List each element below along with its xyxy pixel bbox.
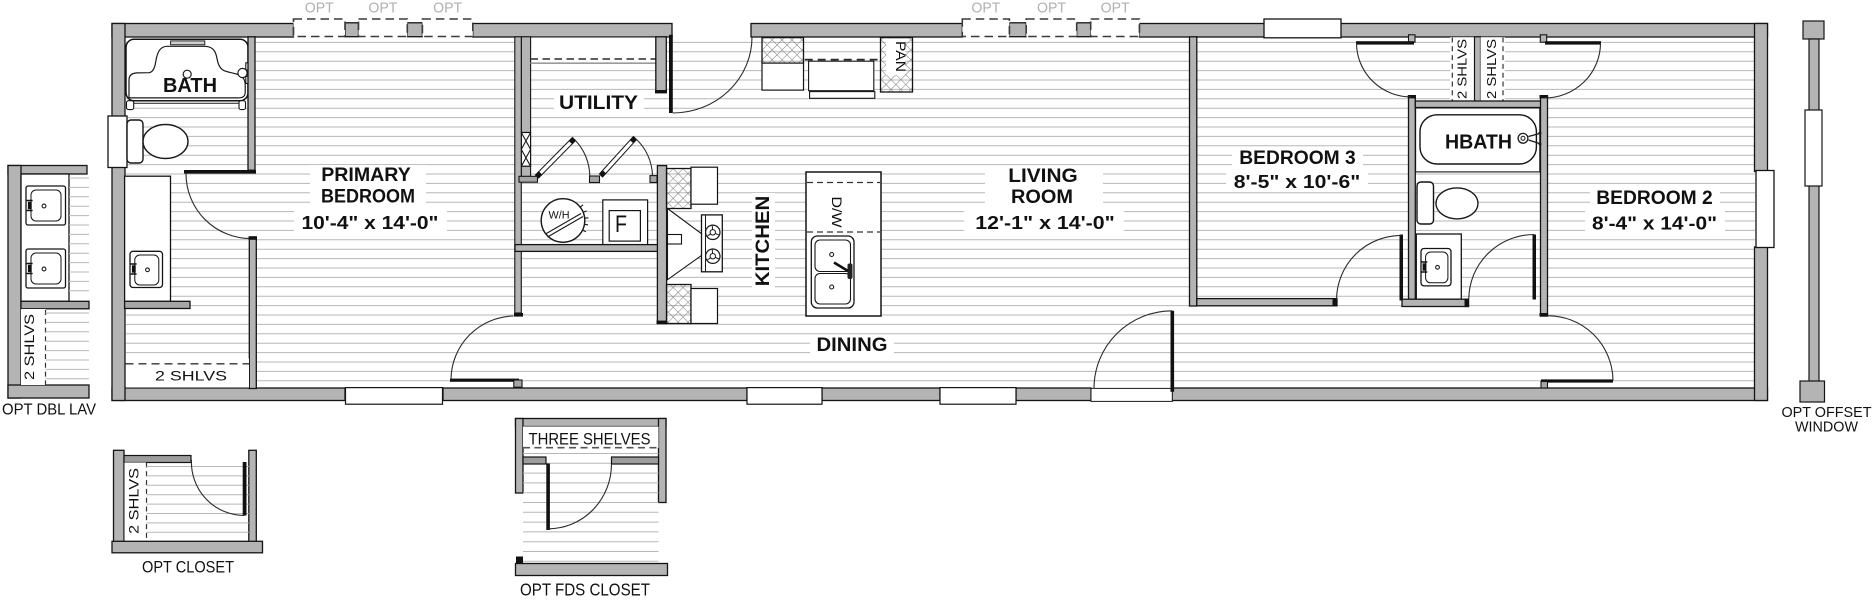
svg-text:ROOM: ROOM [1011, 187, 1073, 208]
svg-text:W/H: W/H [549, 210, 570, 222]
svg-text:2 SHLVS: 2 SHLVS [1455, 39, 1470, 99]
svg-text:OPT: OPT [305, 0, 334, 17]
svg-text:BEDROOM: BEDROOM [321, 187, 415, 208]
svg-text:PRIMARY: PRIMARY [321, 165, 411, 186]
svg-text:D/W: D/W [829, 197, 845, 229]
svg-text:UTILITY: UTILITY [559, 92, 638, 114]
svg-text:WINDOW: WINDOW [1795, 419, 1859, 436]
svg-text:BATH: BATH [163, 75, 217, 97]
svg-text:OPT: OPT [1101, 0, 1130, 17]
svg-text:10'-4" x 14'-0": 10'-4" x 14'-0" [302, 213, 439, 233]
svg-text:8'-4" x 14'-0": 8'-4" x 14'-0" [1592, 214, 1717, 234]
svg-text:F: F [615, 211, 627, 238]
svg-text:2 SHLVS: 2 SHLVS [1484, 39, 1499, 99]
svg-text:OPT: OPT [1037, 0, 1066, 17]
svg-text:12'-1" x 14'-0": 12'-1" x 14'-0" [975, 213, 1115, 233]
svg-text:THREE SHELVES: THREE SHELVES [529, 430, 651, 449]
svg-text:BEDROOM 2: BEDROOM 2 [1596, 188, 1713, 209]
svg-text:OPT FDS CLOSET: OPT FDS CLOSET [520, 580, 650, 600]
svg-text:2 SHLVS: 2 SHLVS [127, 468, 142, 534]
svg-text:OPT: OPT [368, 0, 397, 17]
svg-text:OPT CLOSET: OPT CLOSET [142, 559, 234, 577]
svg-text:HBATH: HBATH [1445, 132, 1512, 154]
svg-text:2 SHLVS: 2 SHLVS [155, 369, 227, 384]
svg-text:KITCHEN: KITCHEN [753, 196, 774, 287]
svg-text:8'-5" x 10'-6": 8'-5" x 10'-6" [1234, 172, 1361, 192]
svg-text:BEDROOM 3: BEDROOM 3 [1239, 148, 1356, 169]
svg-text:DINING: DINING [817, 335, 888, 356]
svg-text:2 SHLVS: 2 SHLVS [22, 314, 37, 380]
svg-text:OPT: OPT [971, 0, 1000, 17]
svg-text:LIVING: LIVING [1008, 166, 1078, 187]
svg-text:PAN: PAN [893, 41, 909, 72]
svg-text:OPT: OPT [433, 0, 462, 17]
svg-text:OPT DBL LAV: OPT DBL LAV [2, 402, 96, 419]
